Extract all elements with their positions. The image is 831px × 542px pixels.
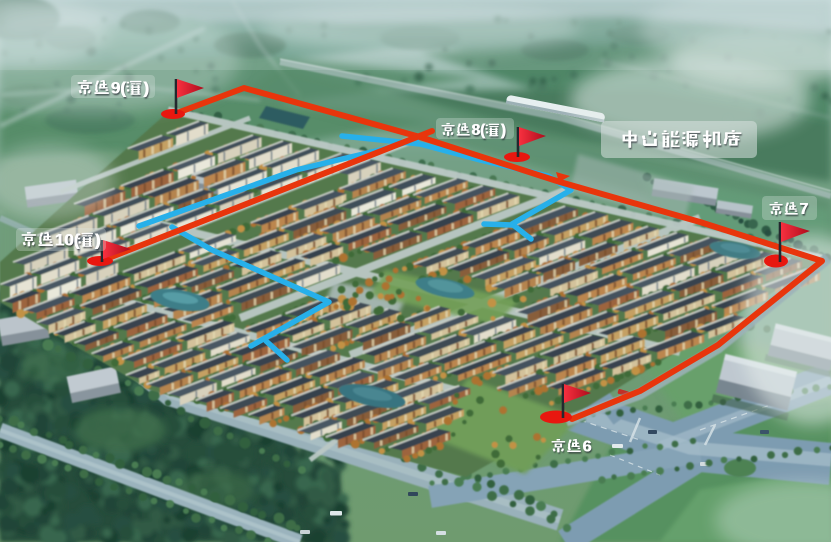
svg-text:): ) [501,122,506,139]
svg-text:10(: 10( [55,231,80,250]
svg-text:9(: 9( [111,79,126,98]
svg-text:7: 7 [800,201,809,218]
svg-text:): ) [144,79,150,98]
svg-text:6: 6 [583,439,592,456]
svg-text:): ) [95,231,101,250]
svg-text:8(: 8( [472,122,487,139]
